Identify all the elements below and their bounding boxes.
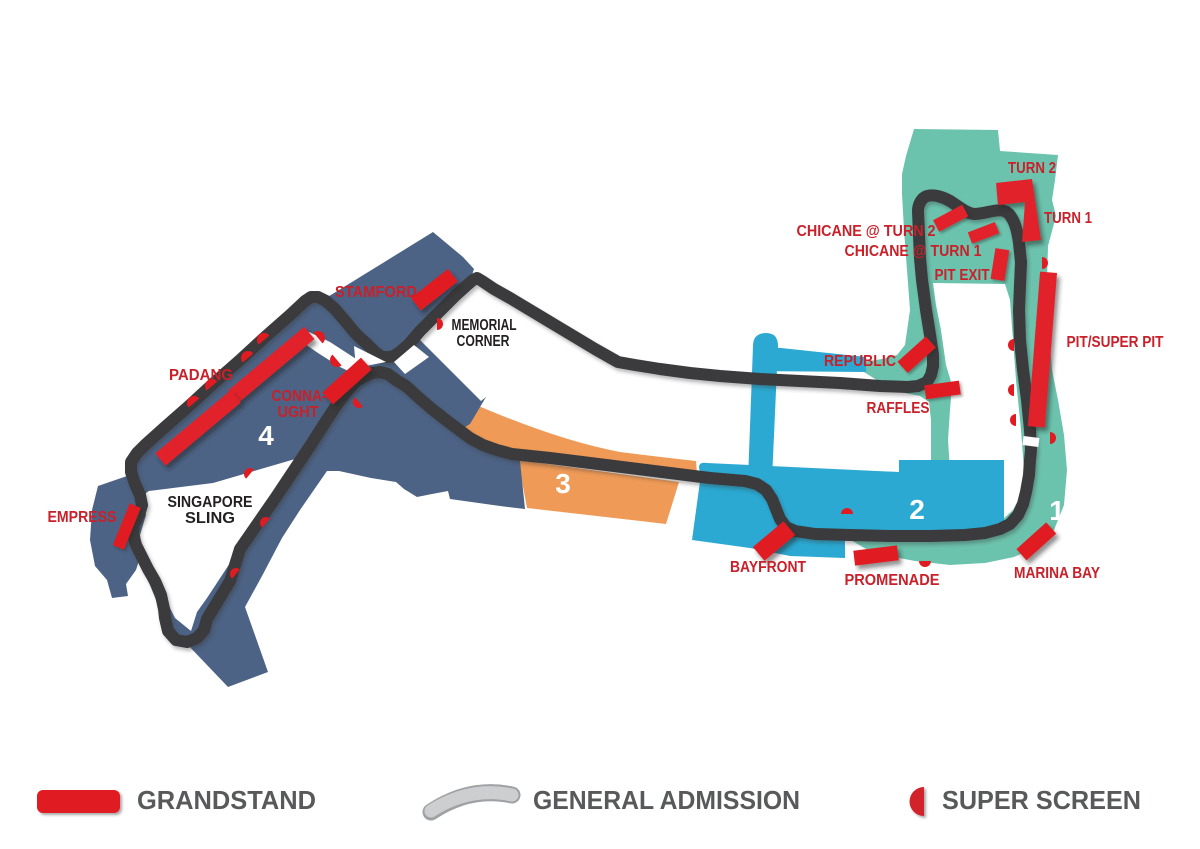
svg-text:PIT EXIT: PIT EXIT [935,267,990,284]
svg-text:RAFFLES: RAFFLES [867,400,930,417]
svg-text:CHICANE @ TURN 1: CHICANE @ TURN 1 [845,243,982,260]
svg-text:MEMORIAL: MEMORIAL [452,317,517,334]
svg-text:GENERAL ADMISSION: GENERAL ADMISSION [533,785,800,815]
svg-text:STAMFORD: STAMFORD [335,284,417,301]
svg-text:PADANG: PADANG [169,367,233,384]
svg-text:3: 3 [555,468,571,499]
svg-text:SINGAPORE: SINGAPORE [168,494,253,511]
svg-text:CONNA-: CONNA- [272,388,327,405]
svg-text:4: 4 [258,420,274,451]
svg-text:CHICANE @ TURN 2: CHICANE @ TURN 2 [797,223,936,240]
svg-text:2: 2 [909,494,925,525]
svg-text:SUPER SCREEN: SUPER SCREEN [942,785,1141,815]
svg-text:REPUBLIC: REPUBLIC [824,353,896,370]
svg-text:PIT/SUPER PIT: PIT/SUPER PIT [1067,334,1164,351]
svg-text:SLING: SLING [185,510,235,527]
svg-text:UGHT: UGHT [278,404,319,421]
svg-text:EMPRESS: EMPRESS [48,509,117,526]
svg-text:MARINA BAY: MARINA BAY [1014,565,1100,582]
svg-text:GRANDSTAND: GRANDSTAND [137,785,316,815]
svg-text:1: 1 [1049,495,1065,526]
svg-text:BAYFRONT: BAYFRONT [730,559,806,576]
svg-text:TURN 2: TURN 2 [1008,160,1056,177]
svg-text:TURN 1: TURN 1 [1044,210,1092,227]
svg-text:CORNER: CORNER [457,333,510,350]
svg-text:PROMENADE: PROMENADE [845,572,940,589]
